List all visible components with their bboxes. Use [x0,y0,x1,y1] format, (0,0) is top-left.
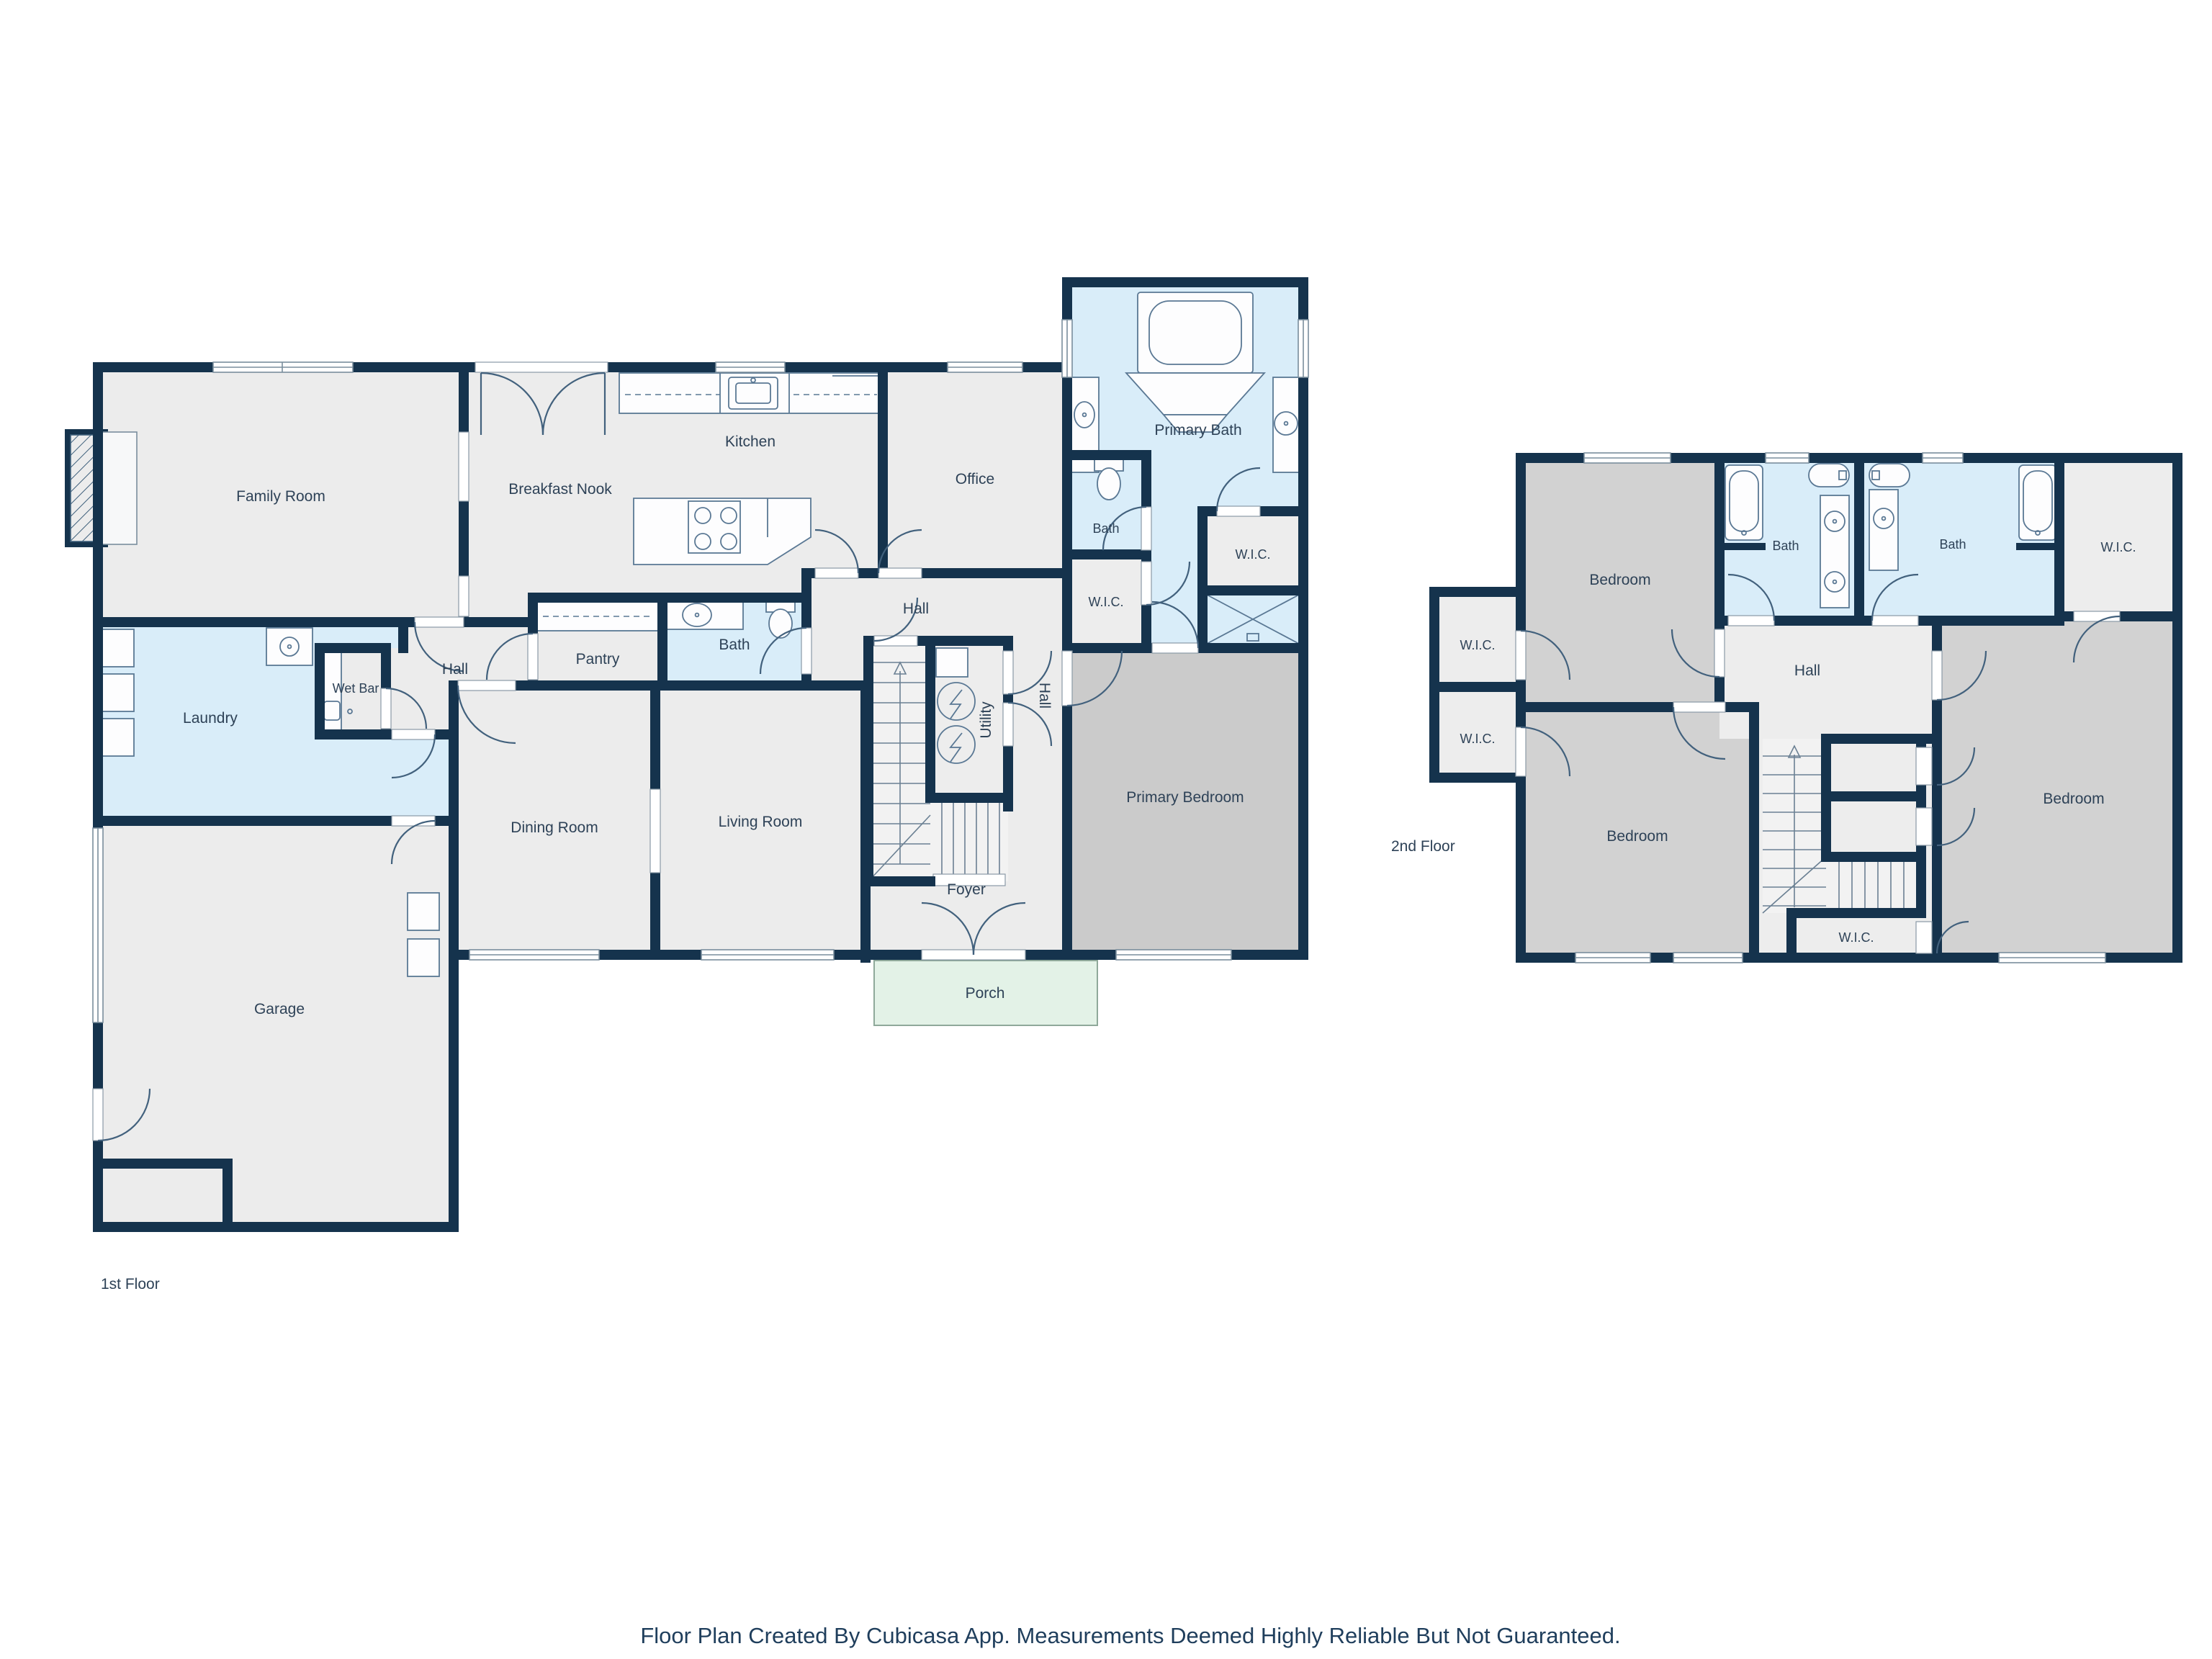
floor-plan-drawing: Family Room Breakfast Nook Kitchen Offic… [0,0,2212,1659]
label-utility: Utility [978,701,994,739]
fireplace-hearth [102,432,137,544]
label-floor-2: 2nd Floor [1391,838,1455,855]
label-family-room: Family Room [236,488,325,505]
label-bath-e: Bath [1939,537,1966,552]
label-bedroom-nw: Bedroom [1589,572,1650,588]
label-primary-bath: Primary Bath [1154,422,1241,439]
label-bath-1f: Bath [719,637,750,653]
room-stairs-lower-2f [1826,857,1921,913]
label-breakfast-nook: Breakfast Nook [508,481,612,498]
footer-disclaimer: Floor Plan Created By Cubicasa App. Meas… [640,1623,1620,1648]
room-bedroom-e [1937,616,2177,958]
label-garage: Garage [254,1001,305,1017]
label-bath-w: Bath [1772,539,1799,553]
first-floor: Family Room Breakfast Nook Kitchen Offic… [65,282,1308,1292]
label-kitchen: Kitchen [725,433,775,450]
room-wic-ne [2059,458,2177,616]
kitchen-island [634,498,811,565]
label-bath-small: Bath [1092,521,1119,536]
room-closet-1 [1832,739,1921,796]
kitchen-counter [619,373,883,413]
label-foyer: Foyer [947,881,986,898]
label-wic-w2: W.I.C. [1460,732,1496,746]
pantry-counter [537,602,660,631]
label-wic-a: W.I.C. [1089,595,1124,609]
label-primary-bedroom: Primary Bedroom [1126,789,1244,806]
label-bedroom-sw: Bedroom [1606,828,1668,845]
label-porch: Porch [966,985,1005,1002]
label-wic-b: W.I.C. [1236,547,1271,562]
room-stairs-upper-1f [868,641,930,881]
floor-plan-page: Family Room Breakfast Nook Kitchen Offic… [0,0,2212,1659]
label-office: Office [956,471,994,487]
label-living: Living Room [719,814,803,830]
label-hall-top: Hall [903,601,929,617]
second-floor: Bedroom Bath Bath W.I.C. W.I.C. W.I.C. H… [1391,453,2177,963]
label-wic-s: W.I.C. [1839,930,1874,945]
label-dining: Dining Room [511,819,598,836]
label-pantry: Pantry [576,651,620,667]
label-hall-2f: Hall [1794,662,1820,679]
label-floor-1: 1st Floor [101,1276,160,1292]
label-hall-vert: Hall [1036,683,1053,709]
label-wic-ne: W.I.C. [2101,540,2136,554]
label-laundry: Laundry [183,710,238,727]
room-closet-2 [1832,796,1921,857]
label-wic-w1: W.I.C. [1460,638,1496,652]
f1-room-fills [98,282,1303,1227]
room-office [883,367,1067,573]
label-wet-bar: Wet Bar [333,681,379,696]
label-hall-west: Hall [442,661,468,678]
label-bedroom-e: Bedroom [2043,791,2104,807]
